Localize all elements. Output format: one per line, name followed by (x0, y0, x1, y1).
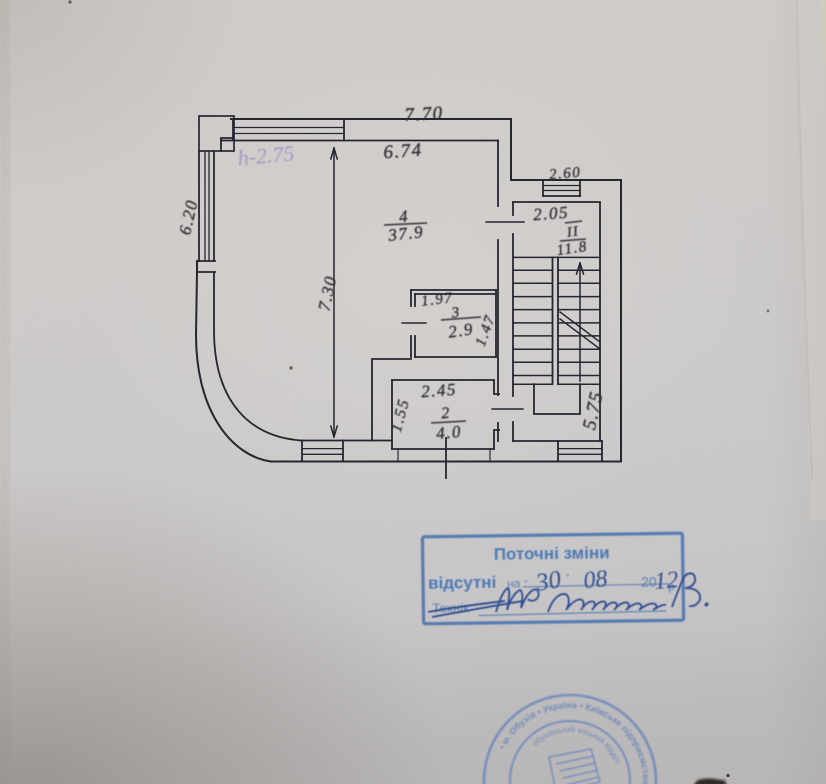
svg-text:2.9: 2.9 (447, 319, 475, 341)
svg-text:„: „ (524, 573, 527, 584)
svg-text:4.0: 4.0 (435, 422, 462, 443)
svg-text:2.60: 2.60 (548, 165, 582, 184)
svg-text:2.05: 2.05 (533, 203, 570, 224)
svg-text:II: II (565, 224, 580, 241)
svg-text:37.9: 37.9 (386, 222, 425, 245)
svg-text:12: 12 (653, 567, 679, 595)
svg-text:7.70: 7.70 (404, 103, 444, 126)
svg-text:відсутні: відсутні (428, 573, 496, 593)
svg-text:08: 08 (582, 566, 609, 594)
svg-text:2.45: 2.45 (421, 380, 458, 401)
svg-text:2: 2 (441, 405, 452, 423)
svg-text:h-2.75: h-2.75 (237, 141, 296, 171)
svg-text:Поточні зміни: Поточні зміни (494, 543, 610, 564)
svg-text:“: “ (566, 573, 569, 584)
svg-text:6.74: 6.74 (383, 140, 424, 164)
